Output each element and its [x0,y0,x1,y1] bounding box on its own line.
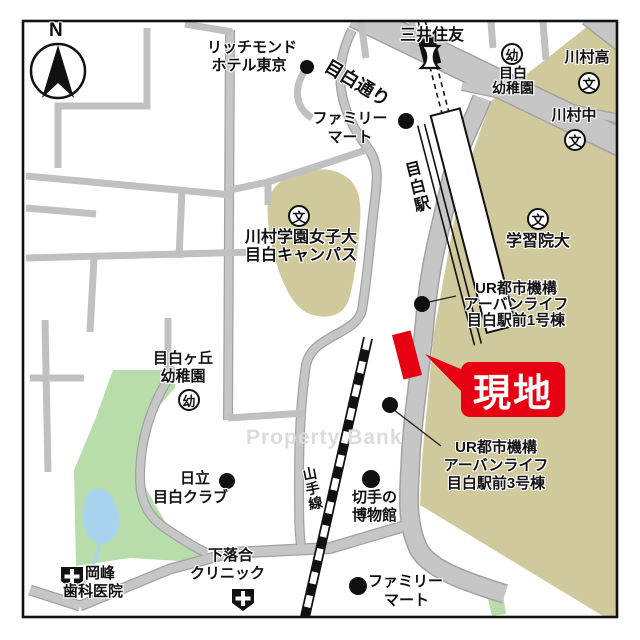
label-richmond-hotel-2: ホテル東京 [190,58,308,74]
label-gakushuin: 学習院大 [502,234,574,251]
poi-dot-ur1 [414,296,430,312]
watermark: Property Bank [246,426,403,450]
label-kawamura-high: 川村高 [559,50,615,66]
label-mejirogaoka-2: 幼稚園 [155,369,211,385]
school-icon-campus: 文 [288,205,310,227]
label-hitachi-1: 日立 [180,471,210,487]
label-ur3-line2: アーバンライフ [436,458,556,474]
site-callout: 現地 [461,362,565,417]
poi-dot-hitachi-club [219,473,235,489]
label-ur1-line2: アーバンライフ [456,297,576,313]
label-okamine-2: 歯科医院 [63,584,123,600]
label-kawamura-campus-1: 川村学園女子大 [238,230,364,247]
label-mitsui-sumitomo: 三井住友 [392,28,472,45]
label-mejiro-yochien-2: 幼稚園 [484,81,542,96]
poi-dot-familymart-south [349,577,367,595]
school-icon-gakushuin: 文 [527,208,549,230]
kindergarten-icon-mejirogaoka: 幼 [178,389,200,411]
label-familymart-north-1: ファミリー [304,111,396,127]
label-mejirogaoka-1: 目白ヶ丘 [146,351,220,367]
compass-n-label: N [49,21,63,41]
label-stamp-museum-1: 切手の [352,490,397,506]
label-kawamura-middle: 川村中 [546,108,602,124]
label-shimoochiai-2: クリニック [190,566,265,582]
label-ur1-line1: UR都市機構 [456,281,576,297]
school-icon-kawamura-middle: 文 [564,129,586,151]
site-callout-text: 現地 [473,362,553,417]
label-shimoochiai-1: 下落合 [208,548,253,564]
label-richmond-hotel-1: リッチモンド [193,40,311,56]
poi-dot-stamp-museum [362,470,380,488]
label-familymart-north-2: マート [304,130,396,146]
label-familymart-south-2: マート [384,593,429,609]
label-ur3-line1: UR都市機構 [436,440,556,456]
label-hitachi-2: 目白クラブ [153,490,228,506]
label-familymart-south-1: ファミリー [368,574,443,590]
label-kawamura-campus-2: 目白キャンパス [238,248,364,265]
kindergarten-icon-mejiro: 幼 [501,43,523,65]
school-icon-kawamura-high: 文 [578,72,600,94]
poi-dot-ur3 [382,397,398,413]
label-okamine-1: 岡峰 [85,566,115,582]
label-ur3-line3: 目白駅前3号棟 [436,476,556,492]
poi-dot-familymart-north [398,113,414,129]
compass [31,44,85,98]
label-stamp-museum-2: 博物館 [352,508,397,524]
label-ur1-line3: 目白駅前1号棟 [456,313,576,329]
label-mejiro-yochien-1: 目白 [492,66,534,81]
